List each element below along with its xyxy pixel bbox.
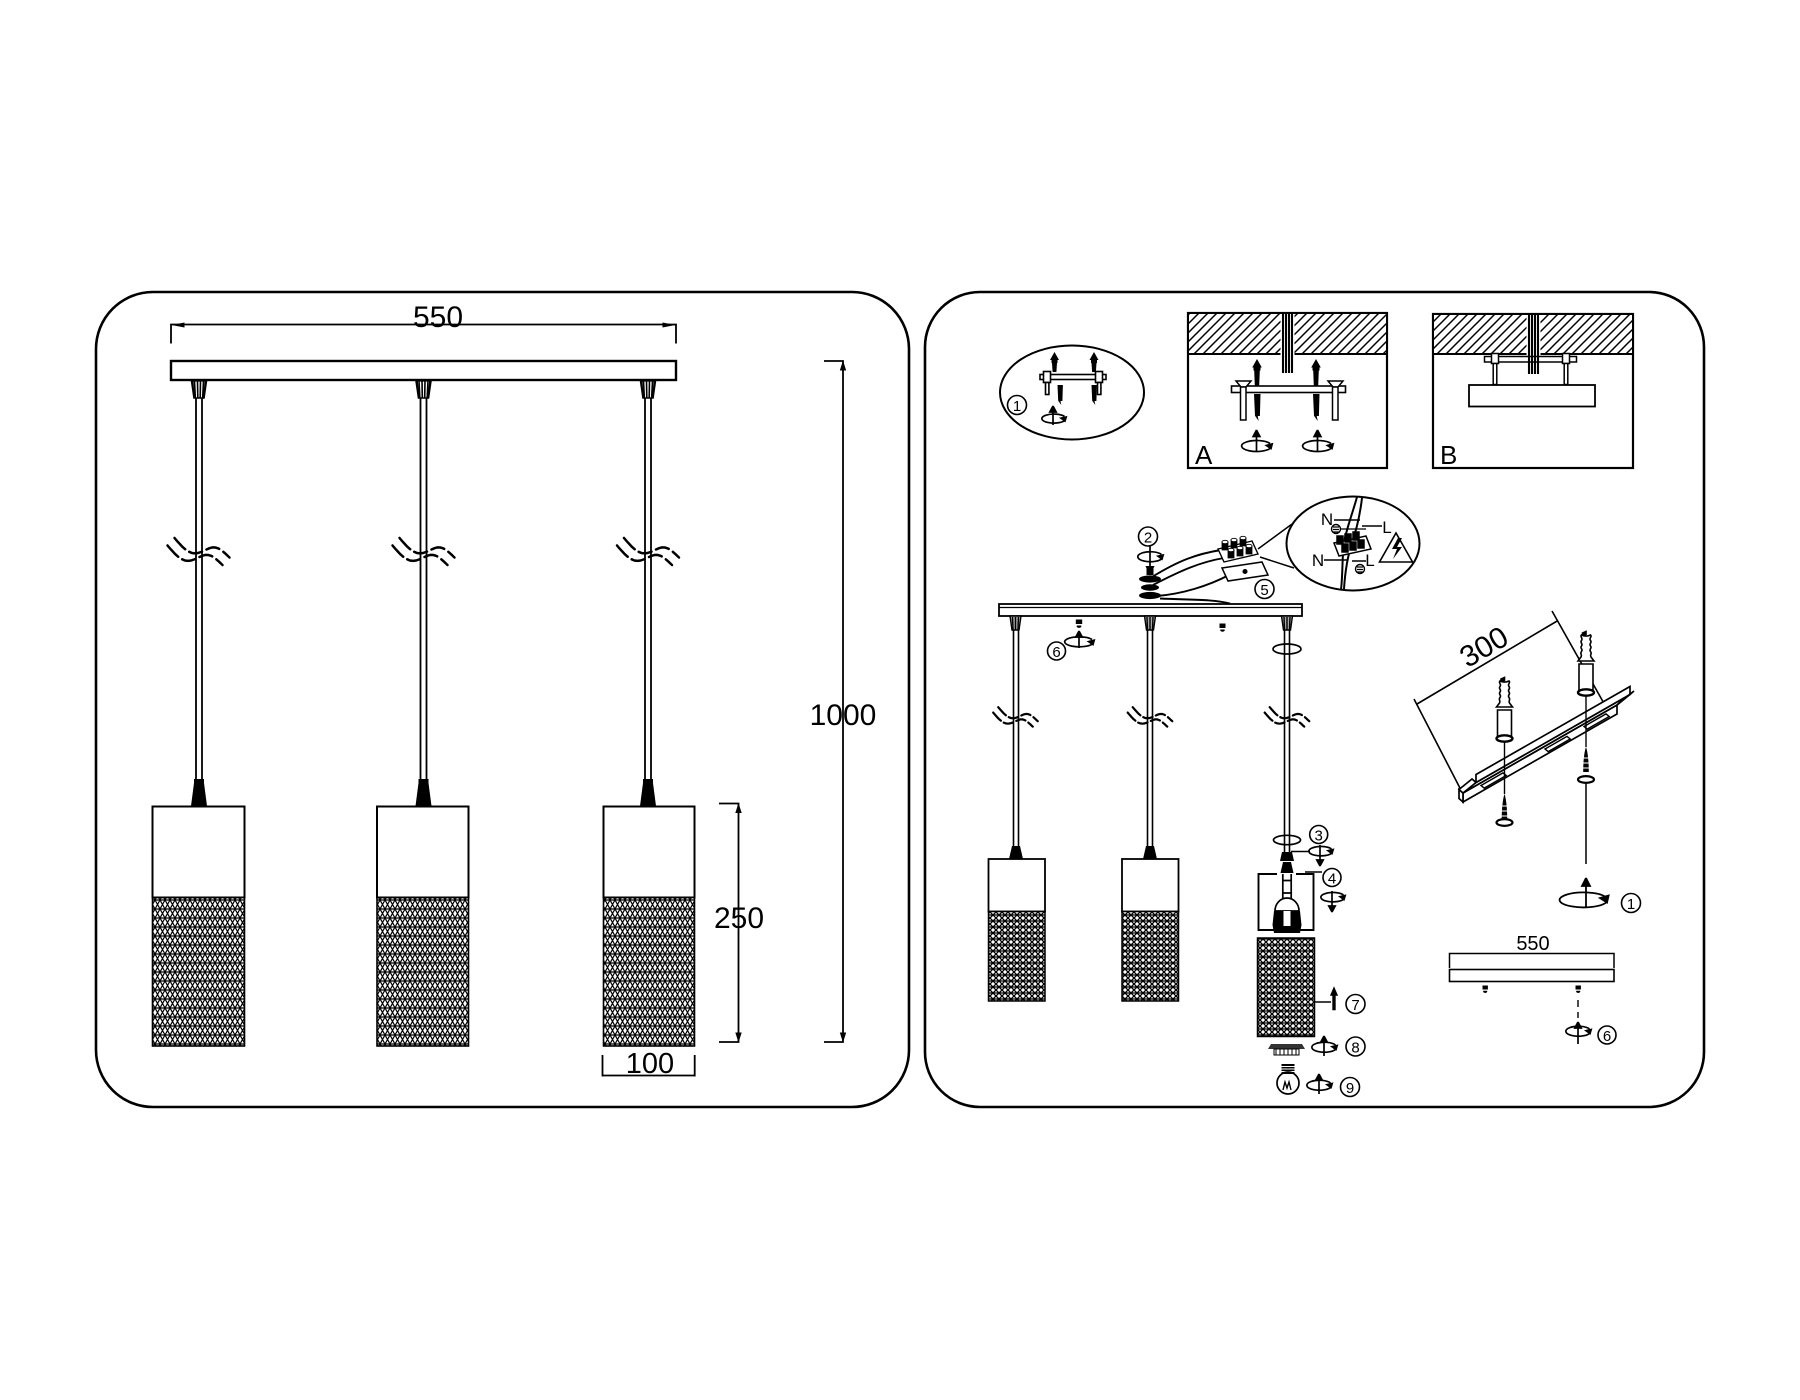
svg-text:9: 9	[1346, 1080, 1354, 1097]
svg-text:250: 250	[714, 902, 764, 935]
svg-text:N: N	[1321, 510, 1333, 529]
svg-text:7: 7	[1351, 997, 1359, 1014]
svg-text:1: 1	[1013, 398, 1021, 415]
svg-text:8: 8	[1351, 1040, 1359, 1057]
svg-text:N: N	[1312, 551, 1324, 570]
svg-text:6: 6	[1603, 1028, 1611, 1045]
svg-text:550: 550	[1516, 933, 1549, 955]
svg-text:1000: 1000	[810, 699, 877, 732]
svg-text:550: 550	[413, 301, 463, 334]
svg-text:2: 2	[1144, 530, 1152, 547]
svg-text:3: 3	[1315, 828, 1323, 845]
svg-text:B: B	[1440, 440, 1457, 470]
svg-text:6: 6	[1052, 644, 1060, 661]
svg-text:1: 1	[1627, 896, 1635, 913]
svg-text:A: A	[1195, 440, 1213, 470]
svg-text:L: L	[1382, 518, 1391, 537]
svg-text:L: L	[1365, 551, 1374, 570]
svg-text:5: 5	[1260, 582, 1268, 599]
svg-text:100: 100	[626, 1048, 674, 1080]
svg-text:4: 4	[1328, 871, 1336, 888]
